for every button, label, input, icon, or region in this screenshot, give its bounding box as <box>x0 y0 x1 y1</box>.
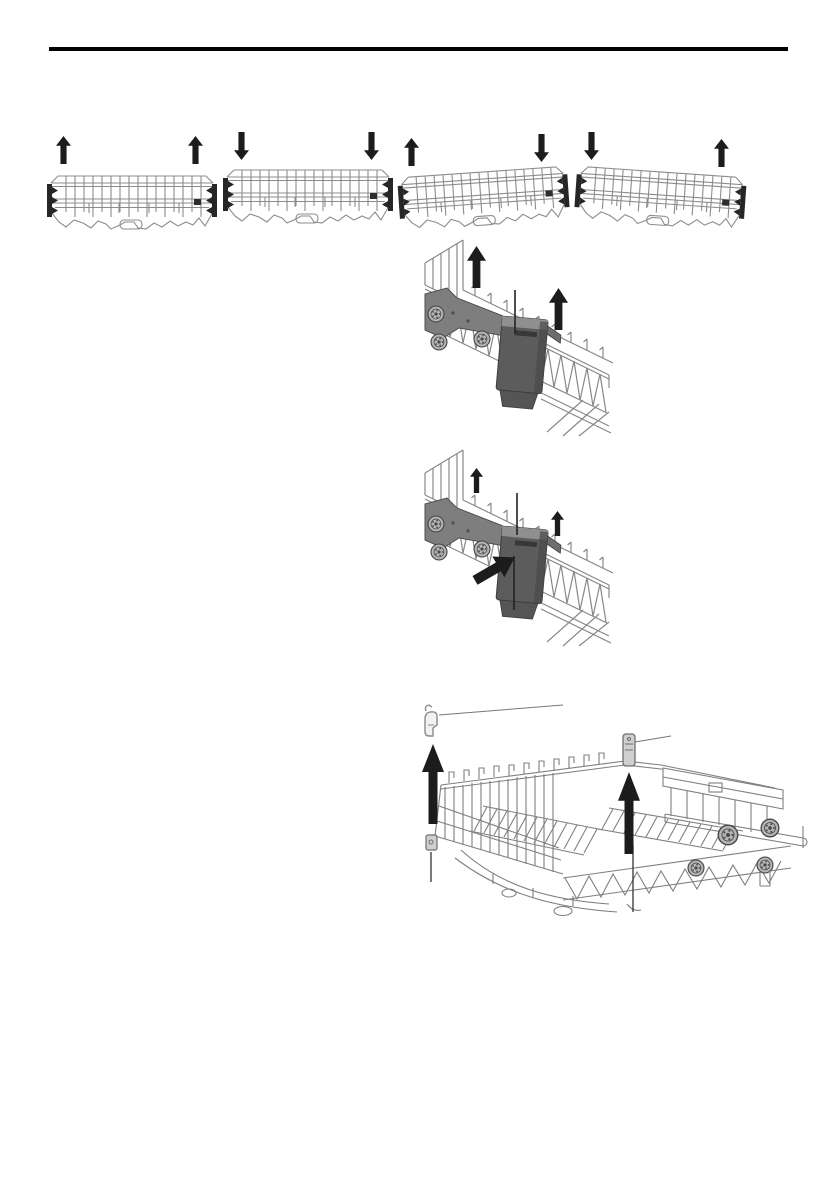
up-arrow-icon <box>404 138 419 166</box>
down-arrow-icon <box>534 134 549 162</box>
retaining-clip-mounted <box>426 835 437 850</box>
basket-wheel <box>761 819 779 837</box>
basket-wheel <box>688 860 704 876</box>
up-arrow-icon <box>551 511 564 536</box>
figure-upper-basket-tilt-left-high <box>574 130 746 240</box>
rail-assembly-illustration <box>425 450 613 646</box>
up-arrow-icon <box>549 288 568 330</box>
callout-line <box>439 705 563 715</box>
up-arrow-icon <box>714 139 729 167</box>
basket-illustration-tilted <box>397 166 570 231</box>
basket-illustration <box>47 176 217 229</box>
figure-basket-side-rail-latch-press <box>413 446 621 648</box>
callout-line <box>635 736 671 742</box>
down-arrow-icon <box>364 132 379 160</box>
retaining-clip-centre <box>623 734 635 766</box>
figure-basket-side-rail-lift <box>413 236 621 438</box>
figure-upper-basket-lower-level <box>222 130 394 236</box>
down-arrow-icon <box>584 132 599 160</box>
up-arrow-icon <box>188 136 203 164</box>
down-arrow-icon <box>234 132 249 160</box>
retaining-clip-removed <box>425 705 437 736</box>
up-arrow-icon <box>56 136 71 164</box>
figure-upper-basket-tilt-right-high <box>398 130 570 238</box>
up-arrow-icon <box>470 468 483 493</box>
manual-page <box>0 0 839 1191</box>
header-rule <box>49 47 788 51</box>
lower-basket-wires <box>435 753 807 916</box>
basket-wheel <box>757 857 773 873</box>
up-arrow-icon <box>422 744 444 824</box>
up-arrow-icon <box>467 246 486 288</box>
figure-upper-basket-raise-level <box>46 134 218 240</box>
basket-illustration-tilted <box>574 166 747 231</box>
rail-assembly-illustration <box>425 240 613 436</box>
basket-illustration <box>223 170 393 223</box>
figure-lower-basket-clip-removal <box>413 688 813 923</box>
basket-wheel <box>718 825 737 844</box>
